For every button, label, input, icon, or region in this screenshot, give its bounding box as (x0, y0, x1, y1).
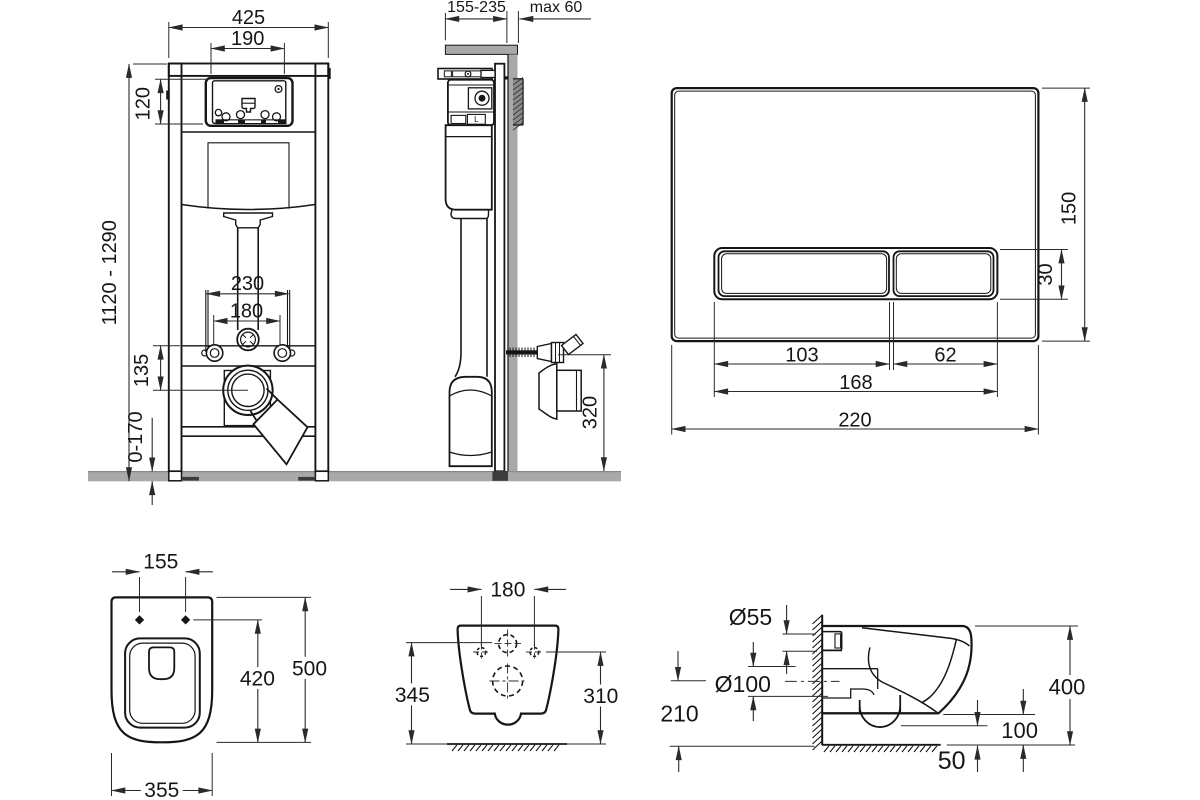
svg-text:100: 100 (1001, 718, 1038, 743)
svg-text:210: 210 (660, 701, 698, 727)
svg-text:355: 355 (144, 779, 179, 800)
svg-text:400: 400 (1049, 675, 1086, 700)
svg-text:320: 320 (580, 396, 602, 429)
svg-text:135: 135 (131, 354, 153, 387)
svg-text:103: 103 (785, 345, 818, 367)
svg-text:150: 150 (1059, 192, 1081, 225)
svg-text:310: 310 (583, 685, 618, 708)
svg-text:155-235: 155-235 (447, 0, 506, 16)
svg-text:345: 345 (395, 684, 430, 707)
svg-text:120: 120 (132, 87, 154, 120)
svg-text:0-170: 0-170 (125, 411, 147, 462)
svg-text:425: 425 (232, 7, 265, 29)
svg-text:230: 230 (231, 273, 264, 295)
svg-text:168: 168 (839, 372, 872, 394)
svg-text:1120 - 1290: 1120 - 1290 (99, 220, 121, 325)
svg-text:Ø55: Ø55 (729, 604, 772, 630)
svg-text:Ø100: Ø100 (715, 671, 771, 697)
svg-text:190: 190 (231, 28, 264, 50)
svg-text:500: 500 (292, 657, 327, 680)
svg-text:180: 180 (490, 578, 525, 601)
svg-text:50: 50 (938, 747, 966, 775)
svg-text:62: 62 (934, 345, 956, 367)
svg-text:180: 180 (230, 301, 263, 323)
svg-text:30: 30 (1035, 263, 1057, 285)
svg-text:155: 155 (143, 551, 178, 574)
svg-text:420: 420 (240, 668, 275, 691)
svg-text:L: L (474, 115, 479, 124)
svg-text:220: 220 (838, 410, 871, 432)
svg-text:max 60: max 60 (530, 0, 583, 16)
